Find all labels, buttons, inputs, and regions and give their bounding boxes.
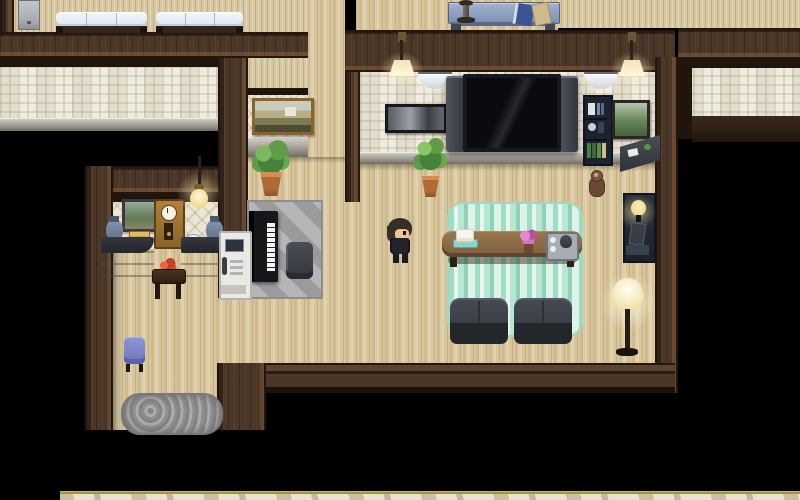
- player-leg: [402, 253, 408, 263]
- bed-post: [156, 27, 163, 33]
- plant-pot: [420, 176, 441, 197]
- plank-wall-northeast: [558, 0, 800, 28]
- sofa-right: [514, 298, 572, 344]
- shelf-divider: [585, 139, 607, 141]
- wall-corner-south: [217, 363, 266, 430]
- table-leg: [450, 256, 457, 267]
- shelf-book-blue: [597, 103, 600, 115]
- landscape-painting-gold: [252, 98, 314, 135]
- bed-base: [56, 26, 147, 33]
- shelf-divider: [585, 118, 607, 120]
- stool-leg: [126, 364, 130, 372]
- wall-tv: [446, 74, 578, 154]
- intercom-handset: [222, 257, 227, 275]
- sofa-back: [514, 323, 572, 344]
- stool-leg: [139, 364, 143, 372]
- potted-plant-2: [414, 136, 447, 198]
- vase-neck: [210, 216, 219, 222]
- bed-post: [140, 27, 147, 33]
- bed-seam: [214, 13, 215, 26]
- game-canvas[interactable]: [0, 0, 800, 500]
- reception-desk-left: [101, 237, 154, 287]
- blue-stool: [124, 337, 145, 372]
- bed-right: [156, 12, 243, 33]
- teacup: [550, 246, 556, 252]
- clock-pendulum: [167, 232, 171, 236]
- right-room-frame-top: [692, 59, 800, 68]
- desk-body: [101, 249, 154, 287]
- wall-lamp-left: [381, 32, 423, 88]
- lamp-shade: [612, 278, 643, 311]
- lamp-bulb: [190, 189, 208, 208]
- plank-wall-mid-column: [248, 58, 308, 90]
- piano-chair: [286, 242, 313, 279]
- doormat-rug[interactable]: [121, 393, 223, 435]
- bed-post: [236, 27, 243, 33]
- wall-living-east: [655, 57, 678, 393]
- shelf-book-green: [592, 143, 596, 158]
- sofa-seam: [478, 301, 480, 323]
- dresser-cabinet: [18, 0, 40, 30]
- tea-tray: [546, 232, 579, 261]
- window-painting: [122, 199, 157, 232]
- sofa-back: [450, 323, 508, 344]
- stool-seat: [124, 337, 145, 364]
- darkroom-wall-frame: [0, 58, 218, 67]
- shelf-item-white: [588, 103, 595, 115]
- bed-left: [56, 12, 147, 33]
- vase-neck: [110, 216, 119, 222]
- white-cake: [456, 229, 474, 242]
- piano-keys: [267, 223, 275, 271]
- dark-tablet: [629, 222, 647, 246]
- plant-pot: [258, 172, 284, 196]
- table-leg: [155, 282, 160, 299]
- piano-nook-wall-frame: [248, 88, 308, 95]
- sofa-seam: [542, 301, 544, 323]
- right-room-frame-column: [678, 59, 692, 139]
- cake-plate: [453, 229, 476, 246]
- dresser-handle: [27, 21, 31, 24]
- table-lower-shelf: [626, 245, 649, 255]
- table-lamp-base: [636, 215, 641, 222]
- desk-counter: [101, 237, 154, 253]
- bed-base: [156, 26, 243, 33]
- shelf-item-dark: [598, 122, 604, 133]
- shelf-item-round: [588, 123, 596, 131]
- flower-pot: [524, 244, 533, 253]
- wall-living-west: [345, 72, 360, 202]
- floor-lamp: [600, 272, 656, 358]
- potted-plant: [250, 140, 292, 198]
- bed-mattress: [56, 12, 147, 27]
- plant-leaves: [252, 140, 290, 174]
- bed-mattress: [156, 12, 243, 27]
- lamp-base: [616, 348, 638, 356]
- sofa-left: [450, 298, 508, 344]
- tv-screen: [467, 78, 557, 148]
- wall-band-right-room: [678, 28, 800, 59]
- shelf-book-tan: [602, 143, 606, 158]
- shelf-book-green: [597, 143, 601, 158]
- intercom-keypad: [230, 257, 243, 275]
- shelf-book-blue: [601, 103, 604, 115]
- bed-seam: [86, 13, 87, 26]
- lamp-base: [457, 17, 475, 23]
- lamp-cord: [630, 40, 633, 62]
- plush-toy: [587, 170, 605, 196]
- desk-green-item: [644, 144, 651, 150]
- console-table-blue: [448, 2, 558, 30]
- green-painting: [612, 100, 650, 139]
- darkroom-baseboard: [0, 118, 218, 131]
- lamp-side-table: [623, 193, 656, 263]
- player-leg: [393, 253, 399, 263]
- flower-side-table: [152, 258, 184, 302]
- intercom-kiosk[interactable]: [219, 231, 252, 300]
- plant-leaves: [414, 136, 447, 178]
- darkroom-wallpaper: [0, 67, 218, 118]
- painting-castle: [285, 107, 296, 116]
- clock-hand: [167, 208, 168, 213]
- player-character[interactable]: [385, 218, 415, 266]
- wall-band-bottom: [217, 363, 675, 393]
- bookshelf: [583, 95, 613, 166]
- wall-band-north: [0, 32, 308, 58]
- lamp-pole: [625, 309, 630, 350]
- desk-paper: [627, 148, 638, 157]
- floor-below-column[interactable]: [218, 298, 248, 365]
- intercom-screen: [225, 239, 244, 252]
- player-eye: [403, 231, 406, 235]
- right-room-dark-baseboard: [692, 116, 800, 142]
- bed-post: [56, 27, 63, 33]
- teacup: [550, 237, 556, 243]
- pink-flowers: [517, 228, 540, 254]
- bed-seam: [116, 13, 117, 26]
- table-lamp-shade: [631, 200, 646, 216]
- bed-seam: [185, 13, 186, 26]
- console-leg: [545, 24, 555, 30]
- plush-face: [594, 173, 598, 177]
- intercom-base: [221, 285, 246, 294]
- right-room-wallpaper: [692, 68, 800, 116]
- lamp-cord: [400, 40, 403, 62]
- clock-pendulum-window: [164, 223, 173, 240]
- marble-hall-floor: [60, 494, 800, 500]
- teapot: [560, 235, 572, 248]
- hanging-lamp: [176, 156, 222, 214]
- clock-face: [161, 205, 177, 221]
- shelf-book-green: [587, 143, 591, 158]
- tv-speaker-right: [559, 76, 578, 152]
- wall-lamp-right: [611, 32, 653, 88]
- table-leg: [176, 282, 181, 299]
- upright-piano: [249, 211, 278, 282]
- dark-table-lamp: [455, 0, 477, 26]
- player-body: [390, 238, 410, 254]
- wall-west-lower: [85, 166, 113, 430]
- panoramic-picture: [385, 104, 447, 133]
